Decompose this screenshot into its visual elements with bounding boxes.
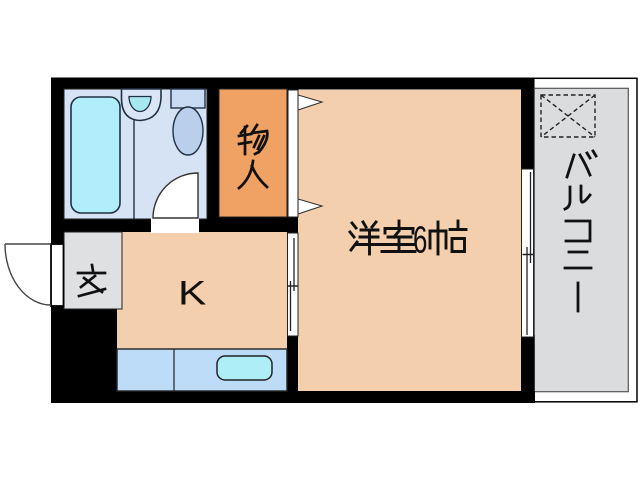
svg-text:K: K <box>178 274 207 312</box>
svg-text:6: 6 <box>413 219 427 261</box>
